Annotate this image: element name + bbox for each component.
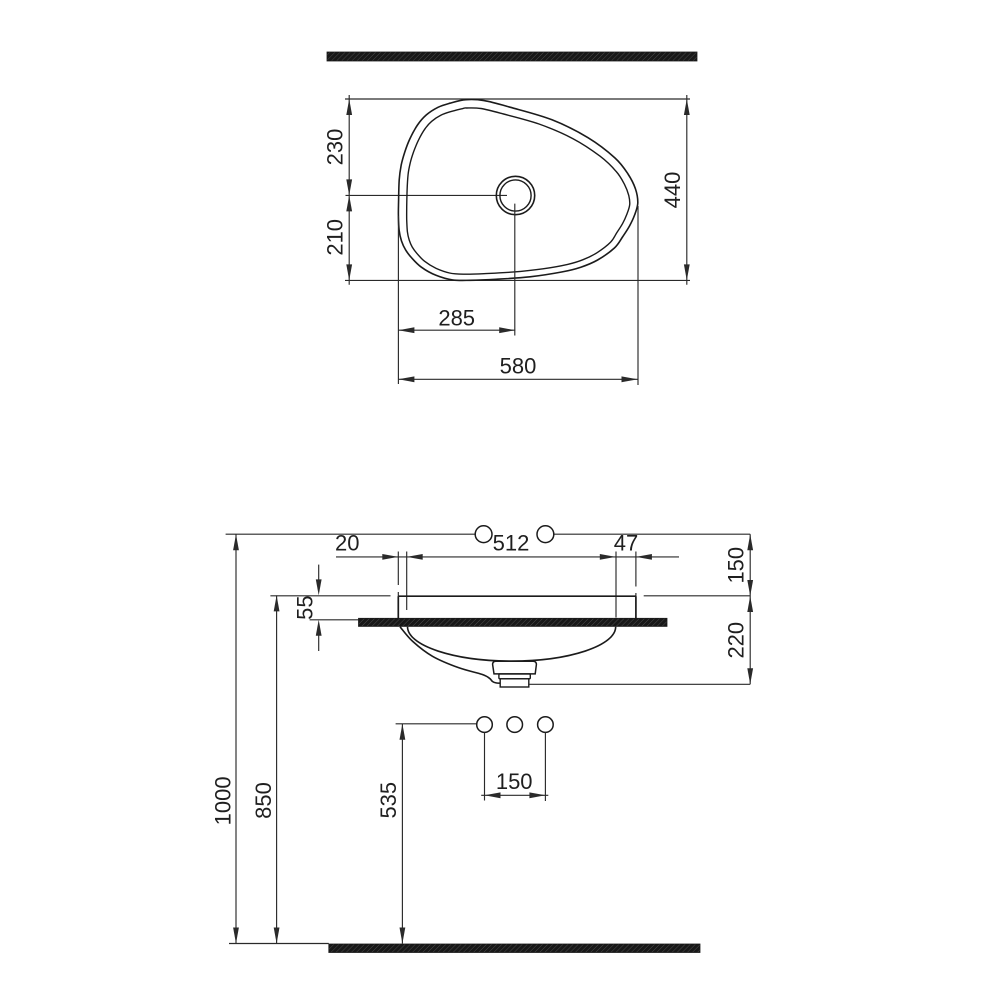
svg-text:47: 47	[614, 530, 638, 555]
svg-text:55: 55	[293, 595, 318, 619]
svg-text:580: 580	[500, 354, 537, 379]
svg-text:512: 512	[493, 530, 530, 555]
svg-text:150: 150	[724, 547, 749, 584]
svg-text:230: 230	[323, 129, 348, 166]
svg-text:150: 150	[496, 769, 533, 794]
svg-text:535: 535	[376, 782, 401, 819]
svg-text:220: 220	[724, 622, 749, 659]
svg-text:850: 850	[251, 782, 276, 819]
svg-text:210: 210	[323, 219, 348, 256]
svg-text:285: 285	[438, 305, 475, 330]
svg-text:1000: 1000	[211, 776, 236, 825]
svg-text:440: 440	[660, 172, 685, 209]
svg-text:20: 20	[335, 530, 359, 555]
